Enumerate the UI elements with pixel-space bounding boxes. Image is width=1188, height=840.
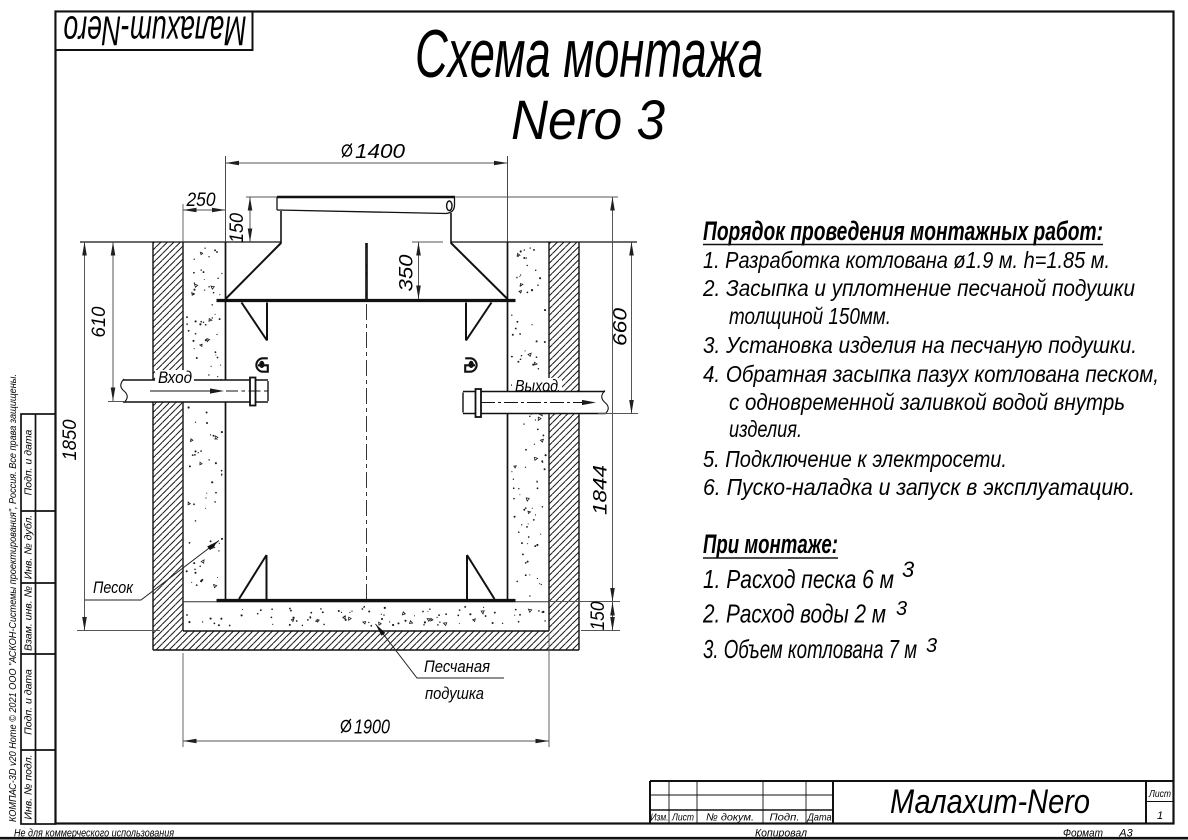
svg-text:1900: 1900 <box>354 717 390 739</box>
svg-text:Песок: Песок <box>93 579 134 597</box>
svg-text:1850: 1850 <box>60 419 81 460</box>
svg-text:Вход: Вход <box>158 369 192 387</box>
svg-text:250: 250 <box>186 190 216 211</box>
svg-text:Подп.: Подп. <box>770 812 800 824</box>
svg-text:Малахит-Nero: Малахит-Nero <box>64 8 247 55</box>
svg-text:1. Разработка котлована ø1.9 м: 1. Разработка котлована ø1.9 м. h=1.85 м… <box>703 247 1110 273</box>
svg-text:150: 150 <box>588 601 609 630</box>
svg-text:2. Расход воды 2 м: 2. Расход воды 2 м <box>702 599 886 629</box>
svg-text:подушка: подушка <box>425 685 484 703</box>
svg-text:4. Обратная засыпка пазух котл: 4. Обратная засыпка пазух котлована песк… <box>703 361 1159 387</box>
svg-text:5. Подключение к электросети.: 5. Подключение к электросети. <box>703 446 1007 472</box>
svg-text:Формат: Формат <box>1063 828 1103 840</box>
svg-text:Песчаная: Песчаная <box>424 658 490 676</box>
svg-text:Выход: Выход <box>515 378 558 396</box>
svg-text:350: 350 <box>397 254 418 292</box>
svg-text:толщиной 150мм.: толщиной 150мм. <box>729 303 891 329</box>
svg-text:660: 660 <box>611 307 632 346</box>
svg-text:Изм.: Изм. <box>651 812 669 824</box>
svg-text:с одновременной заливкой водой: с одновременной заливкой водой внутрь <box>729 389 1125 415</box>
svg-text:А3: А3 <box>1118 828 1133 840</box>
svg-text:6. Пуско-наладка и запуск в эк: 6. Пуско-наладка и запуск в эксплуатацию… <box>703 474 1135 500</box>
svg-text:2. Засыпка и уплотнение песчан: 2. Засыпка и уплотнение песчаной подушки <box>702 275 1135 301</box>
svg-text:Дата: Дата <box>807 812 832 824</box>
svg-text:Схема монтажа: Схема монтажа <box>415 16 763 92</box>
svg-text:Nero 3: Nero 3 <box>511 88 665 151</box>
svg-text:Подп. и дата: Подп. и дата <box>23 429 35 495</box>
svg-text:Подп. и дата: Подп. и дата <box>23 669 35 735</box>
svg-text:150: 150 <box>227 213 248 243</box>
svg-text:изделия.: изделия. <box>729 416 802 442</box>
svg-text:1400: 1400 <box>355 141 405 163</box>
svg-text:При монтаже:: При монтаже: <box>703 529 838 559</box>
svg-text:Взам. инв. №: Взам. инв. № <box>23 586 35 651</box>
svg-text:Лист: Лист <box>671 812 694 824</box>
svg-text:3. Установка изделия на песчан: 3. Установка изделия на песчаную подушки… <box>703 332 1137 358</box>
svg-text:Лист: Лист <box>1148 788 1171 800</box>
svg-text:Малахит-Nero: Малахит-Nero <box>890 783 1090 821</box>
svg-text:3: 3 <box>896 598 907 620</box>
svg-text:Не для коммерческого использов: Не для коммерческого использования <box>14 828 174 840</box>
svg-text:1844: 1844 <box>591 465 612 515</box>
svg-text:3. Объем котлована 7 м: 3. Объем котлована 7 м <box>703 634 917 664</box>
svg-text:КОМПАС-3D v20 Home © 2021 ООО: КОМПАС-3D v20 Home © 2021 ООО "АСКОН-Сис… <box>8 374 19 822</box>
svg-text:Порядок проведения монтажных р: Порядок проведения монтажных работ: <box>703 216 1103 246</box>
svg-text:3: 3 <box>926 635 937 657</box>
svg-text:Инв. № дубл.: Инв. № дубл. <box>23 515 35 580</box>
svg-text:Инв. № подл.: Инв. № подл. <box>23 754 35 819</box>
svg-text:3: 3 <box>902 557 915 582</box>
svg-text:Копировал: Копировал <box>755 828 807 840</box>
svg-text:1: 1 <box>1157 810 1163 822</box>
svg-text:610: 610 <box>89 306 110 337</box>
svg-text:№ докум.: № докум. <box>706 812 754 824</box>
svg-text:1. Расход песка 6 м: 1. Расход песка 6 м <box>703 564 894 594</box>
